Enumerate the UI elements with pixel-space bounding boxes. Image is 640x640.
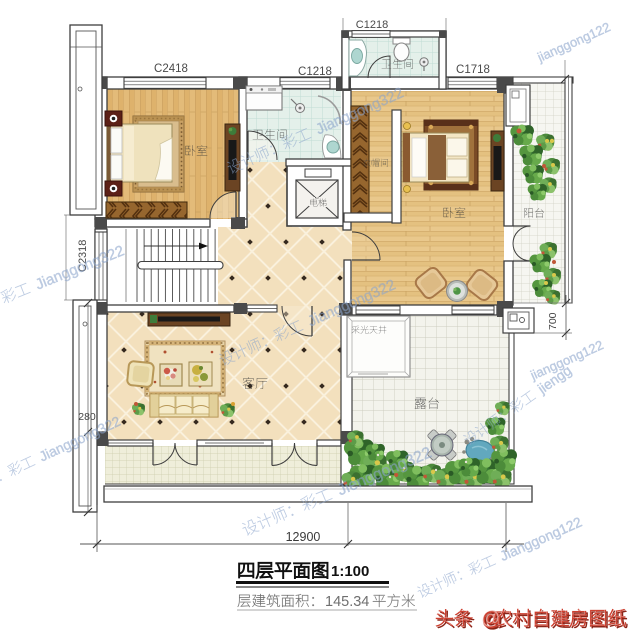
svg-text:C2418: C2418 (154, 63, 188, 75)
svg-text:12900: 12900 (286, 530, 321, 544)
svg-text:C1218: C1218 (356, 19, 388, 31)
svg-text:C1218: C1218 (298, 66, 332, 78)
svg-text:145.34: 145.34 (325, 594, 369, 610)
svg-text:1:100: 1:100 (331, 563, 369, 580)
svg-text:C1718: C1718 (456, 64, 490, 76)
svg-text:700: 700 (547, 312, 559, 330)
svg-text:280: 280 (78, 411, 96, 423)
